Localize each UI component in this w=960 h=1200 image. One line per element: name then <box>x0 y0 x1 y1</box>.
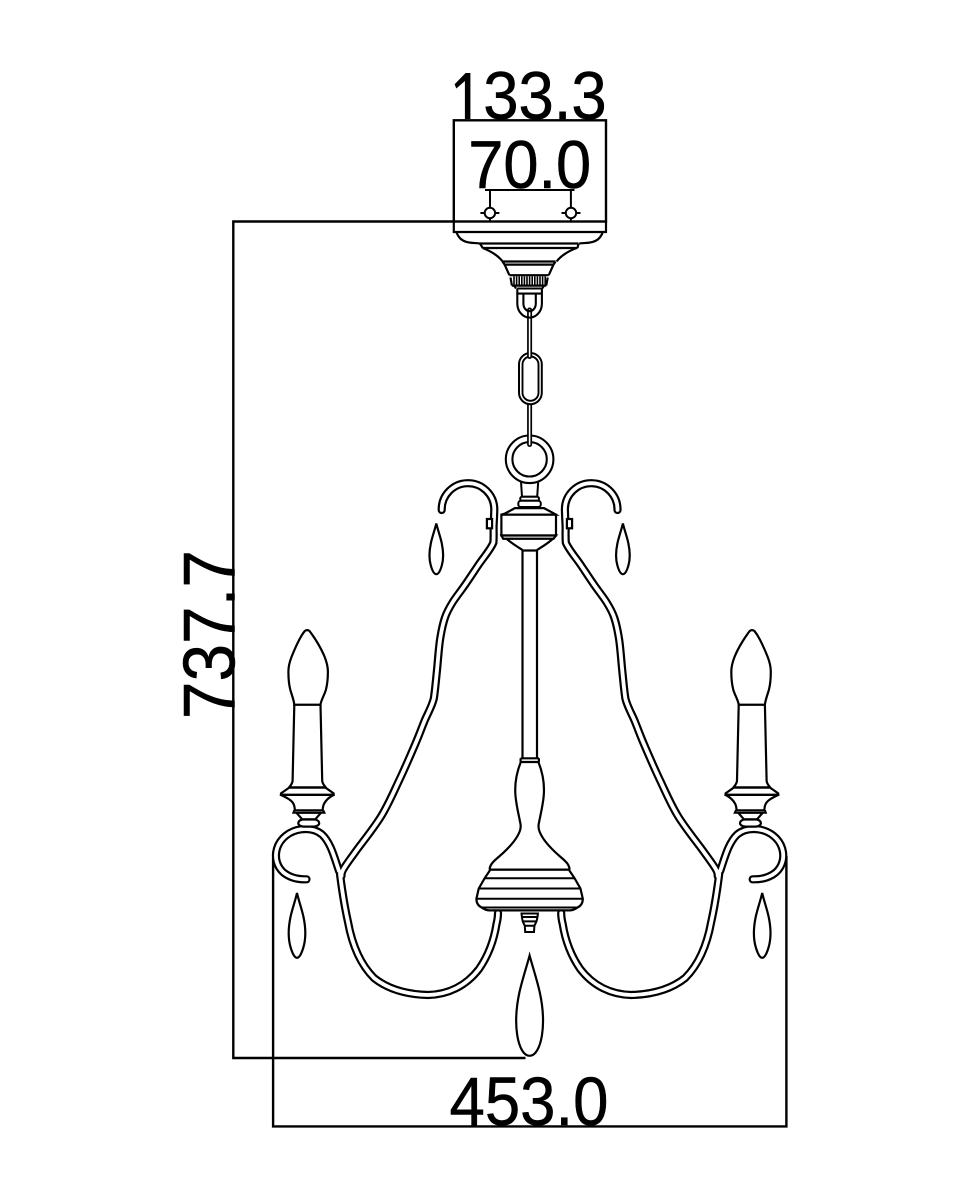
svg-text:33.3: 33.3 <box>483 58 607 134</box>
svg-text:737.7: 737.7 <box>170 550 251 719</box>
svg-text:70.0: 70.0 <box>468 127 591 203</box>
svg-text:453.0: 453.0 <box>450 1063 609 1140</box>
